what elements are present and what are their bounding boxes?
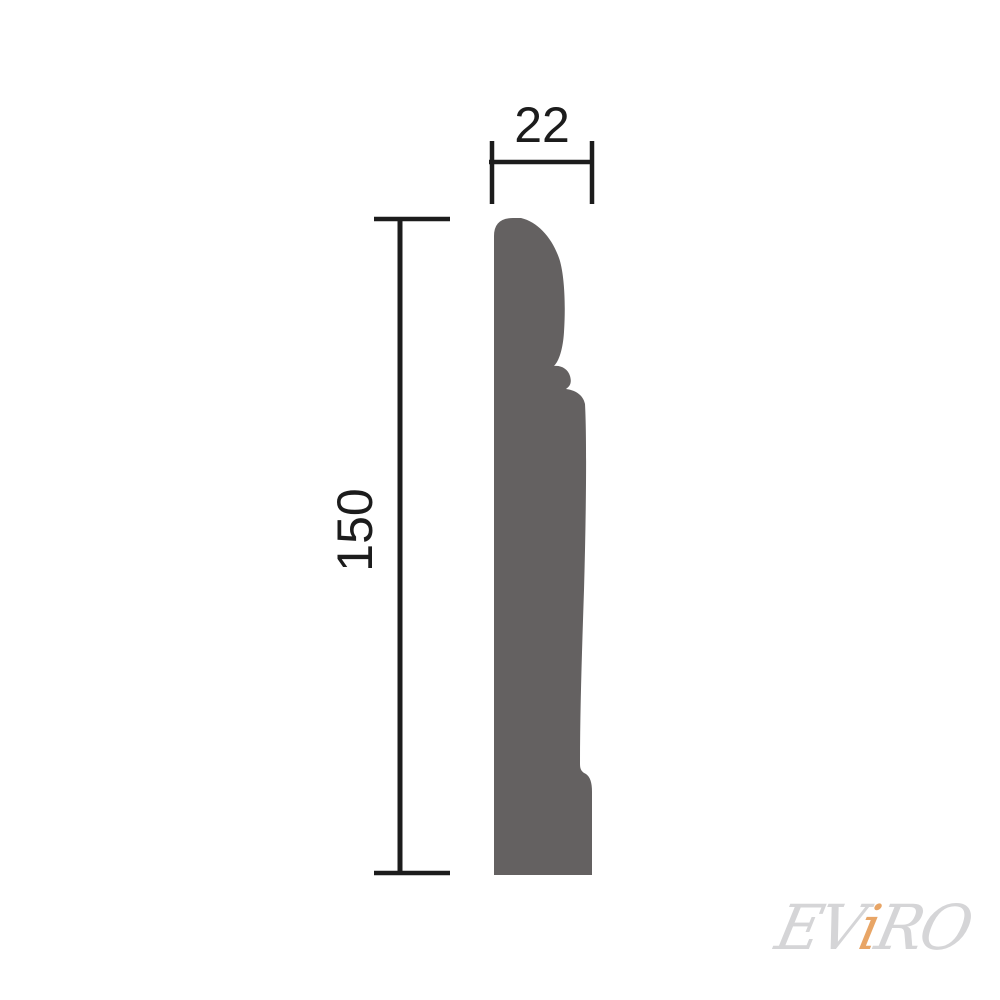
height-dimension: 150 bbox=[327, 219, 450, 875]
height-dimension-label: 150 bbox=[327, 488, 383, 571]
watermark-logo: EViRO bbox=[741, 893, 1000, 963]
watermark-text-ro: RO bbox=[869, 891, 976, 964]
skirting-profile-shape bbox=[494, 218, 592, 875]
watermark-text-ev: EV bbox=[770, 891, 868, 964]
width-dimension: 22 bbox=[489, 97, 594, 204]
width-dimension-label: 22 bbox=[514, 97, 570, 153]
diagram-canvas: 22 150 EViRO bbox=[0, 0, 1000, 1000]
profile-drawing: 22 150 bbox=[0, 0, 1000, 1000]
